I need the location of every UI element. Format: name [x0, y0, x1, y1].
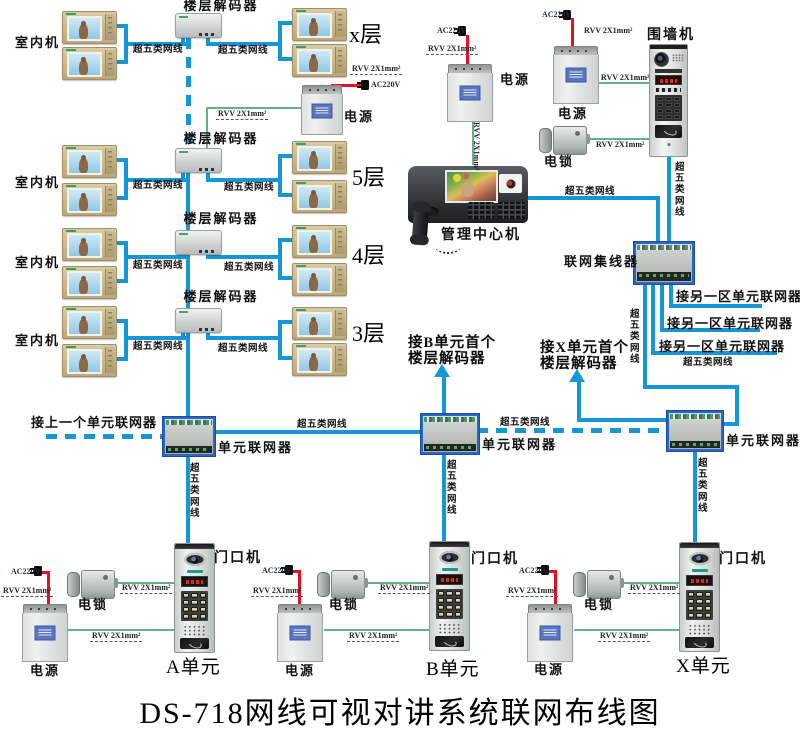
rvv-cable-label: RVV 2X1mm²	[472, 122, 480, 170]
unit-networker-device	[667, 411, 723, 451]
keypad-key	[696, 613, 702, 618]
decoder-ports	[199, 168, 217, 171]
cat5-vertical-label: 超五类网线	[190, 464, 200, 520]
lock-body	[331, 570, 365, 599]
decoder-ports	[199, 250, 217, 253]
lock-body	[553, 126, 587, 155]
cat5-wire-segment	[477, 428, 669, 433]
keypad-key	[696, 599, 702, 604]
monitor-screen	[67, 188, 102, 213]
keypad-key	[688, 613, 694, 618]
monitor-screen	[67, 16, 102, 41]
monitor-button-panel	[335, 346, 345, 372]
cat5-wire-segment	[206, 336, 282, 340]
keypad-key	[191, 607, 197, 612]
electric-lock-device	[317, 570, 367, 598]
monitor-brand-mark	[296, 345, 306, 347]
keypad-key	[438, 591, 444, 596]
keypad-key	[200, 593, 206, 598]
floor-name-label: 4层	[352, 245, 385, 267]
indoor-unit-label: 室内机	[15, 334, 60, 349]
indoor-monitor	[62, 47, 117, 80]
to-other-zone-label: 接另一区单元联网器	[659, 340, 785, 355]
indoor-monitor	[292, 180, 347, 213]
indoor-unit-label: 室内机	[15, 36, 60, 51]
cat5-wire-segment	[693, 449, 697, 543]
person-on-screen	[309, 154, 318, 169]
ac220v-label: AC220V	[519, 567, 548, 575]
door-keypad	[686, 590, 713, 620]
cat5-wire-segment	[656, 196, 660, 244]
monitor-brand-mark	[66, 346, 76, 348]
door-brand-logo	[442, 568, 458, 571]
ac220v-label: AC220V	[371, 81, 400, 89]
power-supply-device	[301, 85, 343, 135]
monitor-brand-mark	[296, 10, 306, 12]
camera-icon	[439, 551, 460, 564]
cat5-wire-segment	[124, 255, 188, 259]
power-supply-device	[553, 46, 599, 104]
keypad-key	[674, 115, 680, 119]
keypad-key	[455, 605, 461, 610]
cat5-wire-segment	[577, 418, 669, 422]
page-title: DS-718网线可视对讲系统联网布线图	[0, 697, 800, 730]
cat5-label: 超五类网线	[500, 419, 550, 429]
ac220v-label: AC220V	[262, 567, 291, 575]
monitor-screen	[297, 312, 332, 337]
screw-dot	[667, 143, 670, 146]
flower-icon	[453, 174, 461, 182]
ac-wire-segment	[571, 18, 574, 46]
person-on-screen	[79, 241, 88, 256]
keypad-key	[446, 605, 452, 610]
cat5-wire-segment	[278, 238, 282, 280]
keypad-key	[665, 97, 671, 101]
management-center-label: 管理中心机	[441, 228, 521, 244]
power-wire-segment	[599, 82, 649, 84]
cat5-wire-segment	[721, 422, 739, 426]
cat5-wire-segment	[278, 21, 282, 61]
indoor-monitor	[292, 141, 347, 174]
rvv-cable-label: RVV 2X1mm²	[347, 632, 399, 642]
door-top-cap	[430, 542, 469, 547]
keypad-key	[455, 598, 461, 603]
networker-panel	[165, 419, 213, 454]
keypad-key	[688, 606, 694, 611]
person-on-screen	[79, 319, 88, 334]
to-x-unit-note-line1: 接X单元首个	[540, 341, 629, 357]
monitor-screen	[67, 349, 102, 374]
monitor-screen	[297, 348, 332, 373]
door-keypad	[181, 591, 208, 621]
monitor-brand-mark	[66, 49, 76, 51]
indoor-monitor	[62, 266, 117, 299]
monitor-brand-mark	[296, 265, 306, 267]
wall-name-strip	[655, 69, 682, 73]
rvv-cable-label: RVV 2X1mm²	[1, 587, 53, 597]
door-station-device	[174, 543, 215, 653]
unit-networker-label: 单元联网器	[218, 441, 293, 456]
psu-body	[553, 55, 599, 104]
person-on-screen	[461, 182, 474, 197]
keypad-key	[665, 109, 671, 113]
cat5-vertical-label: 超五类网线	[630, 310, 640, 366]
wall-station-device	[649, 44, 688, 157]
power-supply-device	[447, 64, 493, 122]
indoor-monitor	[292, 343, 347, 376]
networker-port-strip	[424, 444, 476, 451]
door-station-label: 门口机	[471, 552, 519, 568]
decoder-led	[179, 16, 188, 18]
monitor-button-panel	[335, 11, 345, 37]
person-on-screen	[79, 60, 88, 75]
indoor-monitor	[292, 8, 347, 41]
wiring-diagram-canvas: DS-718网线可视对讲系统联网布线图 楼层解码器楼层解码器楼层解码器楼层解码器…	[0, 0, 800, 732]
electric-lock-device	[573, 570, 623, 598]
cat5-wire-segment	[643, 385, 739, 389]
keypad-key	[665, 103, 671, 107]
keypad-key	[438, 612, 444, 617]
monitor-button-panel	[105, 231, 115, 257]
keypad-key	[688, 592, 694, 597]
camera-lens	[696, 555, 703, 562]
lock-body	[81, 570, 115, 599]
floor-decoder-device	[175, 230, 222, 255]
cat5-wire-segment	[46, 434, 163, 439]
floor-decoder-label: 楼层解码器	[156, 290, 286, 305]
cat5-wire-segment	[124, 336, 188, 340]
power-supply-label: 电源	[558, 107, 588, 122]
door-top-cap	[175, 544, 214, 549]
door-display	[181, 576, 208, 587]
lock-cylinder	[67, 572, 80, 597]
camera-icon	[689, 552, 710, 565]
monitor-screen	[297, 230, 332, 255]
person-on-screen	[309, 356, 318, 371]
rvv-cable-label: RVV 2X1mm²	[378, 584, 430, 594]
monitor-button-panel	[335, 228, 345, 254]
rvv-cable-label: RVV 2X1mm²	[601, 74, 649, 82]
keypad-key	[191, 593, 197, 598]
decoder-ports	[199, 33, 217, 36]
psu-label-sticker	[290, 626, 311, 641]
floor-name-label: 5层	[352, 167, 385, 189]
cat5-label: 超五类网线	[224, 264, 274, 274]
psu-body	[447, 73, 493, 122]
electric-lock-label: 电锁	[584, 598, 614, 613]
indoor-unit-label: 室内机	[15, 256, 60, 271]
monitor-brand-mark	[296, 46, 306, 48]
person-on-screen	[309, 320, 318, 335]
monitor-screen	[67, 271, 102, 296]
door-station-device	[679, 542, 720, 652]
keypad-key	[674, 97, 680, 101]
cat5-label: 超五类网线	[565, 188, 615, 198]
keypad-key	[455, 612, 461, 617]
display-digits	[660, 79, 677, 83]
psu-body	[301, 94, 343, 135]
rvv-cable-label: RVV 2X1mm²	[628, 584, 680, 594]
floor-decoder-label: 楼层解码器	[156, 132, 286, 147]
camera-lens	[191, 556, 198, 563]
keypad-key	[438, 605, 444, 610]
keypad-key	[705, 613, 711, 618]
indoor-monitor	[62, 145, 117, 178]
cat5-wire-segment	[735, 387, 739, 426]
cat5-wire-segment	[186, 329, 190, 419]
floor-decoder-device	[175, 148, 222, 173]
cat5-wire-segment	[667, 152, 671, 244]
person-on-screen	[79, 279, 88, 294]
person-on-screen	[309, 238, 318, 253]
unit-networker-device	[163, 417, 215, 456]
monitor-screen	[297, 268, 332, 293]
power-supply-label: 电源	[500, 73, 530, 88]
to-other-zone-label: 接另一区单元联网器	[667, 317, 793, 332]
lock-cylinder	[317, 572, 330, 597]
monitor-screen	[297, 13, 332, 38]
psu-label-sticker	[566, 68, 587, 83]
person-on-screen	[79, 158, 88, 173]
floor-decoder-label: 楼层解码器	[156, 0, 286, 14]
power-supply-device	[22, 604, 68, 662]
cat5-wire-segment	[577, 381, 581, 421]
monitor-button-panel	[105, 269, 115, 295]
psu-label-sticker	[35, 626, 56, 641]
door-station-device	[429, 541, 470, 651]
door-station-label: 门口机	[214, 551, 262, 567]
keypad-key	[674, 103, 680, 107]
lock-connector	[620, 578, 624, 588]
psu-body	[527, 613, 573, 662]
cat5-wire-segment	[442, 376, 446, 416]
monitor-screen	[67, 311, 102, 336]
cat5-label: 超五类网线	[218, 345, 268, 355]
cat5-wire-segment	[442, 452, 446, 542]
rvv-cable-label: RVV 2X1mm²	[251, 587, 303, 597]
cat5-label: 超五类网线	[133, 343, 183, 353]
rvv-cable-label: RVV 2X1mm²	[90, 632, 142, 642]
keypad-key	[446, 591, 452, 596]
networker-pcb-strip	[637, 245, 691, 250]
networker-port-strip	[166, 446, 212, 453]
keypad-key	[705, 599, 711, 604]
keypad-key	[696, 592, 702, 597]
keypad-key	[657, 97, 663, 101]
electric-lock-device	[539, 126, 589, 154]
rvv-cable-label: RVV 2X1mm²	[350, 65, 402, 75]
keypad-key	[183, 593, 189, 598]
wall-display	[655, 75, 682, 85]
networker-port-strip	[670, 441, 720, 448]
door-top-cap	[680, 543, 719, 548]
network-hub-label: 联网集线器	[564, 255, 639, 270]
networker-panel	[636, 244, 692, 282]
networker-panel	[423, 416, 477, 452]
decoder-led	[179, 233, 188, 235]
rvv-cable-label: RVV 2X1mm²	[584, 27, 632, 35]
psu-label-sticker	[312, 103, 333, 118]
monitor-button-panel	[105, 347, 115, 373]
camera-lens	[446, 554, 453, 561]
keypad-key	[191, 614, 197, 619]
floor-name-label: 3层	[352, 323, 385, 345]
card-reader	[180, 638, 209, 649]
keypad-key	[657, 115, 663, 119]
cat5-wire-segment	[278, 154, 282, 197]
cat5-wire-segment	[206, 178, 282, 182]
person-on-screen	[309, 21, 318, 36]
networker-port-strip	[637, 272, 691, 281]
person-on-screen	[309, 276, 318, 291]
door-keypad	[436, 589, 463, 619]
keypad-key	[200, 607, 206, 612]
indoor-monitor	[62, 183, 117, 216]
rvv-cable-label: RVV 2X1mm²	[426, 45, 478, 55]
display-digits	[186, 580, 203, 584]
rvv-cable-label: RVV 2X1mm²	[216, 110, 268, 120]
lock-connector	[586, 134, 590, 144]
networker-pcb-strip	[166, 420, 212, 425]
flower-icon	[463, 173, 469, 179]
monitor-button-panel	[335, 266, 345, 292]
person-on-screen	[79, 357, 88, 372]
indoor-monitor	[62, 228, 117, 261]
ac220v-label: AC220V	[11, 568, 40, 576]
indoor-monitor	[292, 307, 347, 340]
to-x-unit-note-line2: 楼层解码器	[540, 357, 618, 373]
keypad-key	[705, 592, 711, 597]
cat5-wire-segment	[660, 282, 664, 332]
keypad-key	[696, 606, 702, 611]
unit-name-label: A单元	[166, 658, 221, 677]
keypad-key	[455, 591, 461, 596]
indoor-monitor	[62, 344, 117, 377]
cat5-label: 超五类网线	[297, 421, 347, 431]
keypad-key	[200, 600, 206, 605]
electric-lock-device	[67, 570, 117, 598]
unit-name-label: X单元	[676, 657, 731, 676]
cat5-wire-segment	[651, 282, 655, 355]
power-supply-device	[277, 604, 323, 662]
monitor-brand-mark	[296, 182, 306, 184]
power-supply-device	[527, 604, 573, 662]
ac-plug-icon	[361, 80, 369, 90]
cat5-wire-segment	[124, 241, 128, 283]
cat5-wire-segment	[643, 282, 647, 388]
lock-cylinder	[539, 128, 552, 153]
monitor-button-panel	[335, 144, 345, 170]
monitor-button-panel	[335, 310, 345, 336]
door-brand-logo	[692, 569, 708, 572]
monitor-button-panel	[105, 186, 115, 212]
card-reader	[655, 125, 682, 138]
lock-body	[587, 570, 621, 599]
networker-panel	[669, 413, 721, 449]
phone-screen	[445, 170, 498, 203]
card-reader	[435, 636, 464, 647]
networker-pcb-strip	[424, 417, 476, 422]
wall-station-label: 围墙机	[647, 28, 695, 44]
monitor-brand-mark	[66, 268, 76, 270]
keypad-key	[674, 109, 680, 113]
psu-label-sticker	[460, 86, 481, 101]
indoor-monitor	[292, 225, 347, 258]
decoder-led	[179, 311, 188, 313]
phone-brand-logo	[499, 174, 522, 193]
psu-label-sticker	[540, 626, 561, 641]
wall-keypad	[655, 95, 682, 121]
indoor-monitor	[62, 306, 117, 339]
display-digits	[691, 579, 708, 583]
keypad-key	[688, 599, 694, 604]
unit-networker-label: 单元联网器	[726, 434, 800, 449]
cat5-wire-segment	[278, 320, 282, 360]
keypad-key	[665, 115, 671, 119]
cat5-label: 超五类网线	[133, 46, 183, 56]
monitor-screen	[67, 233, 102, 258]
rvv-cable-label: RVV 2X1mm²	[506, 587, 558, 597]
lock-connector	[364, 578, 368, 588]
psu-body	[22, 613, 68, 662]
door-display	[436, 574, 463, 585]
monitor-button-panel	[335, 183, 345, 209]
indoor-monitor	[292, 263, 347, 296]
wall-top-cap	[650, 45, 687, 49]
camera-icon	[654, 52, 669, 67]
person-on-screen	[309, 193, 318, 208]
monitor-brand-mark	[66, 13, 76, 15]
decoder-ports	[199, 328, 217, 331]
to-b-unit-note-line1: 接B单元首个	[408, 336, 496, 352]
door-display	[686, 575, 713, 586]
monitor-screen	[67, 150, 102, 175]
keypad-key	[438, 598, 444, 603]
keypad-key	[446, 612, 452, 617]
indoor-monitor	[62, 11, 117, 44]
lock-cylinder	[573, 572, 586, 597]
person-on-screen	[79, 24, 88, 39]
cat5-label: 超五类网线	[224, 184, 274, 194]
to-other-zone-label: 接另一区单元联网器	[676, 290, 800, 305]
floor-decoder-device	[175, 13, 222, 38]
to-b-unit-note-line2: 楼层解码器	[408, 352, 486, 368]
lock-connector	[114, 578, 118, 588]
rvv-cable-label: RVV 2X1mm²	[120, 584, 172, 594]
monitor-button-panel	[105, 14, 115, 40]
cat5-wire-segment	[124, 319, 128, 361]
ac220v-label: AC220V	[542, 11, 571, 19]
cat5-vertical-label: 超五类网线	[675, 163, 685, 219]
door-brand-logo	[187, 570, 203, 573]
to-prev-networker-label: 接上一个单元联网器	[31, 416, 157, 431]
electric-lock-label: 电锁	[78, 598, 108, 613]
keypad-key	[200, 614, 206, 619]
person-on-screen	[79, 196, 88, 211]
monitor-brand-mark	[296, 309, 306, 311]
cat5-vertical-label: 超五类网线	[698, 459, 708, 515]
monitor-screen	[297, 146, 332, 171]
monitor-brand-mark	[66, 185, 76, 187]
card-reader	[685, 637, 714, 648]
power-supply-label: 电源	[344, 110, 374, 125]
cat5-label: 超五类网线	[133, 262, 183, 272]
display-digits	[441, 578, 458, 582]
keypad-key	[183, 600, 189, 605]
keypad-key	[705, 606, 711, 611]
speaker-grille-icon	[672, 54, 684, 62]
phone-keypad	[498, 202, 525, 219]
